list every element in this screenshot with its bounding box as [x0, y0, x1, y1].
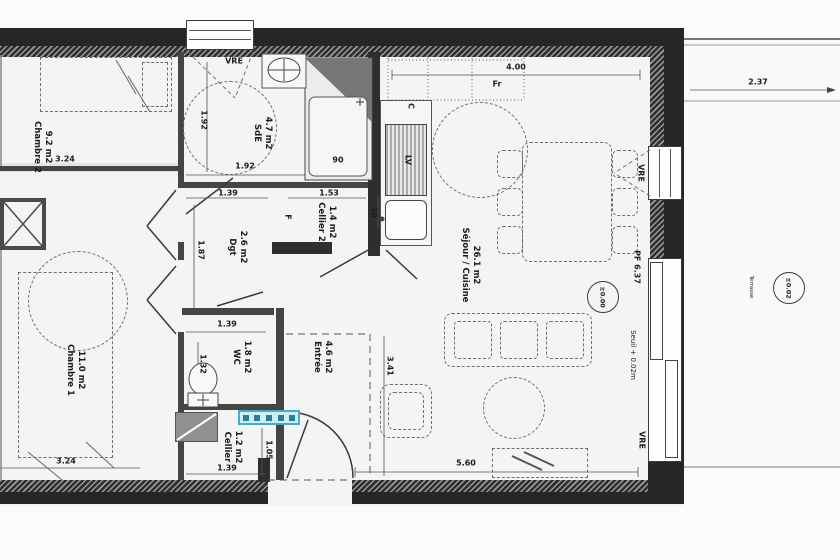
dim-wall-thickness: 30 [370, 206, 379, 217]
top-wall-hatch [0, 46, 664, 57]
room-label-chambre1: 11.0 m2 Chambre 1 [64, 344, 86, 396]
room-label-sde: 4.7 m2 SdE [251, 117, 273, 150]
dim-dgt-height: 1.87 [197, 240, 206, 260]
entry-door-opening [268, 478, 352, 506]
dim-shower-size: 90 [332, 156, 343, 165]
sofa-seat [500, 321, 538, 359]
sde-bottom-wall [178, 182, 376, 188]
kitchen-sink [385, 200, 427, 240]
sofa-seat [454, 321, 492, 359]
dim-chambre2-width: 3.24 [55, 155, 75, 164]
label-window-top: VRE [225, 57, 243, 66]
pf-sliding-panel-2 [665, 360, 678, 458]
level-marker-terrace: ±0.02 [773, 272, 805, 304]
dim-dgt-width: 1.39 [218, 189, 238, 198]
dgt-kitchen-stub-wall [272, 242, 332, 254]
room-label-cellier2: 1.4 m2 Cellier 2 [315, 202, 337, 242]
label-cooker: C [407, 103, 416, 109]
room-name: Entrée [311, 341, 322, 374]
dim-sejour-bottom-width: 5.60 [456, 459, 476, 468]
top-wall [0, 28, 664, 46]
dim-wc-height: 1.32 [199, 354, 208, 374]
wardrobe [0, 198, 46, 250]
dim-window-right: PF 6.37 [633, 250, 642, 284]
dining-table [522, 142, 612, 262]
room-label-cellier: 1.2 m2 Cellier [221, 431, 243, 464]
window-top [186, 20, 254, 50]
intercom-segment [278, 415, 284, 421]
window-glass-line [189, 39, 251, 40]
room-name: Séjour / Cuisine [459, 228, 470, 303]
chair [612, 150, 638, 178]
chambre2-pillow [142, 62, 168, 107]
level-value: ±0.00 [599, 286, 607, 307]
dim-terrace-width: 2.37 [748, 78, 768, 87]
pf-sliding-panel-1 [650, 262, 663, 360]
dim-sde-width: 1.92 [235, 162, 255, 171]
entry-door-jamb [258, 458, 270, 482]
terrace-area [684, 40, 840, 467]
dim-entree-height: 3.41 [386, 356, 395, 376]
dgt-left-wall-upper [178, 242, 184, 260]
dim-cellier2-width: 1.53 [319, 189, 339, 198]
room-area: 1.4 m2 [326, 202, 337, 242]
room-label-chambre2: 9.2 m2 Chambre 2 [31, 121, 53, 173]
label-window-right-lower: VRE [638, 431, 647, 449]
round-table [483, 377, 545, 439]
label-freezer: F [284, 214, 293, 219]
floor-plan: 9.2 m2 Chambre 2 4.7 m2 SdE 1.4 m2 Celli… [0, 0, 840, 560]
wc-right-wall [276, 308, 284, 480]
dim-cellier-width: 1.39 [217, 464, 237, 473]
label-dishwasher: LV [404, 155, 413, 165]
corner-block [648, 458, 684, 504]
label-terrace: Terrasse [748, 276, 754, 299]
cellier-water-heater [175, 412, 218, 442]
window-glass-line [670, 149, 671, 197]
room-area: 11.0 m2 [75, 344, 86, 396]
room-area: 26.1 m2 [470, 228, 481, 303]
chair [612, 188, 638, 216]
label-threshold: Seuil + 0.02m [629, 330, 637, 380]
window-glass-line [659, 149, 660, 197]
window-glass-line [189, 30, 251, 31]
window-right-upper [648, 146, 682, 200]
room-label-sejour: 26.1 m2 Séjour / Cuisine [459, 228, 481, 303]
room-area: 4.7 m2 [262, 117, 273, 150]
dim-sde-height: 1.92 [200, 110, 209, 130]
sofa-seat [546, 321, 584, 359]
room-label-dgt: 2.6 m2 Dgt [226, 231, 248, 264]
label-fridge: Fr [493, 80, 502, 89]
room-name: Chambre 1 [64, 344, 75, 396]
electrical-panel [238, 410, 300, 425]
room-area: 9.2 m2 [42, 121, 53, 173]
room-name: Cellier 2 [315, 202, 326, 242]
label-window-right-upper: VRE [637, 164, 646, 182]
chambre2-bottom-wall [0, 166, 180, 171]
room-name: SdE [251, 117, 262, 150]
intercom-segment [266, 415, 272, 421]
room-name: Chambre 2 [31, 121, 42, 173]
room-area: 1.8 m2 [241, 341, 252, 374]
room-name: WC [230, 341, 241, 374]
armchair-seat [388, 392, 424, 430]
intercom-segment [254, 415, 260, 421]
dim-sejour-top-width: 4.00 [506, 63, 526, 72]
room-name: Cellier [221, 431, 232, 464]
level-value: ±0.02 [785, 277, 793, 298]
chair [497, 188, 523, 216]
intercom-segment [243, 415, 249, 421]
room-area: 4.6 m2 [322, 341, 333, 374]
tv-unit [492, 448, 588, 478]
dim-cellier-height: 1.05 [265, 440, 274, 460]
room-label-entree: 4.6 m2 Entrée [311, 341, 333, 374]
room-area: 1.2 m2 [232, 431, 243, 464]
chair [497, 150, 523, 178]
intercom-segment [289, 415, 295, 421]
level-marker-interior: ±0.00 [587, 281, 619, 313]
kitchen-wall [368, 52, 380, 256]
chair [497, 226, 523, 254]
wc-top-wall [182, 308, 274, 315]
dim-chambre1-width: 3.24 [56, 457, 76, 466]
room-label-wc: 1.8 m2 WC [230, 341, 252, 374]
room-area: 2.6 m2 [237, 231, 248, 264]
dim-wc-width: 1.39 [217, 320, 237, 329]
room-name: Dgt [226, 231, 237, 264]
